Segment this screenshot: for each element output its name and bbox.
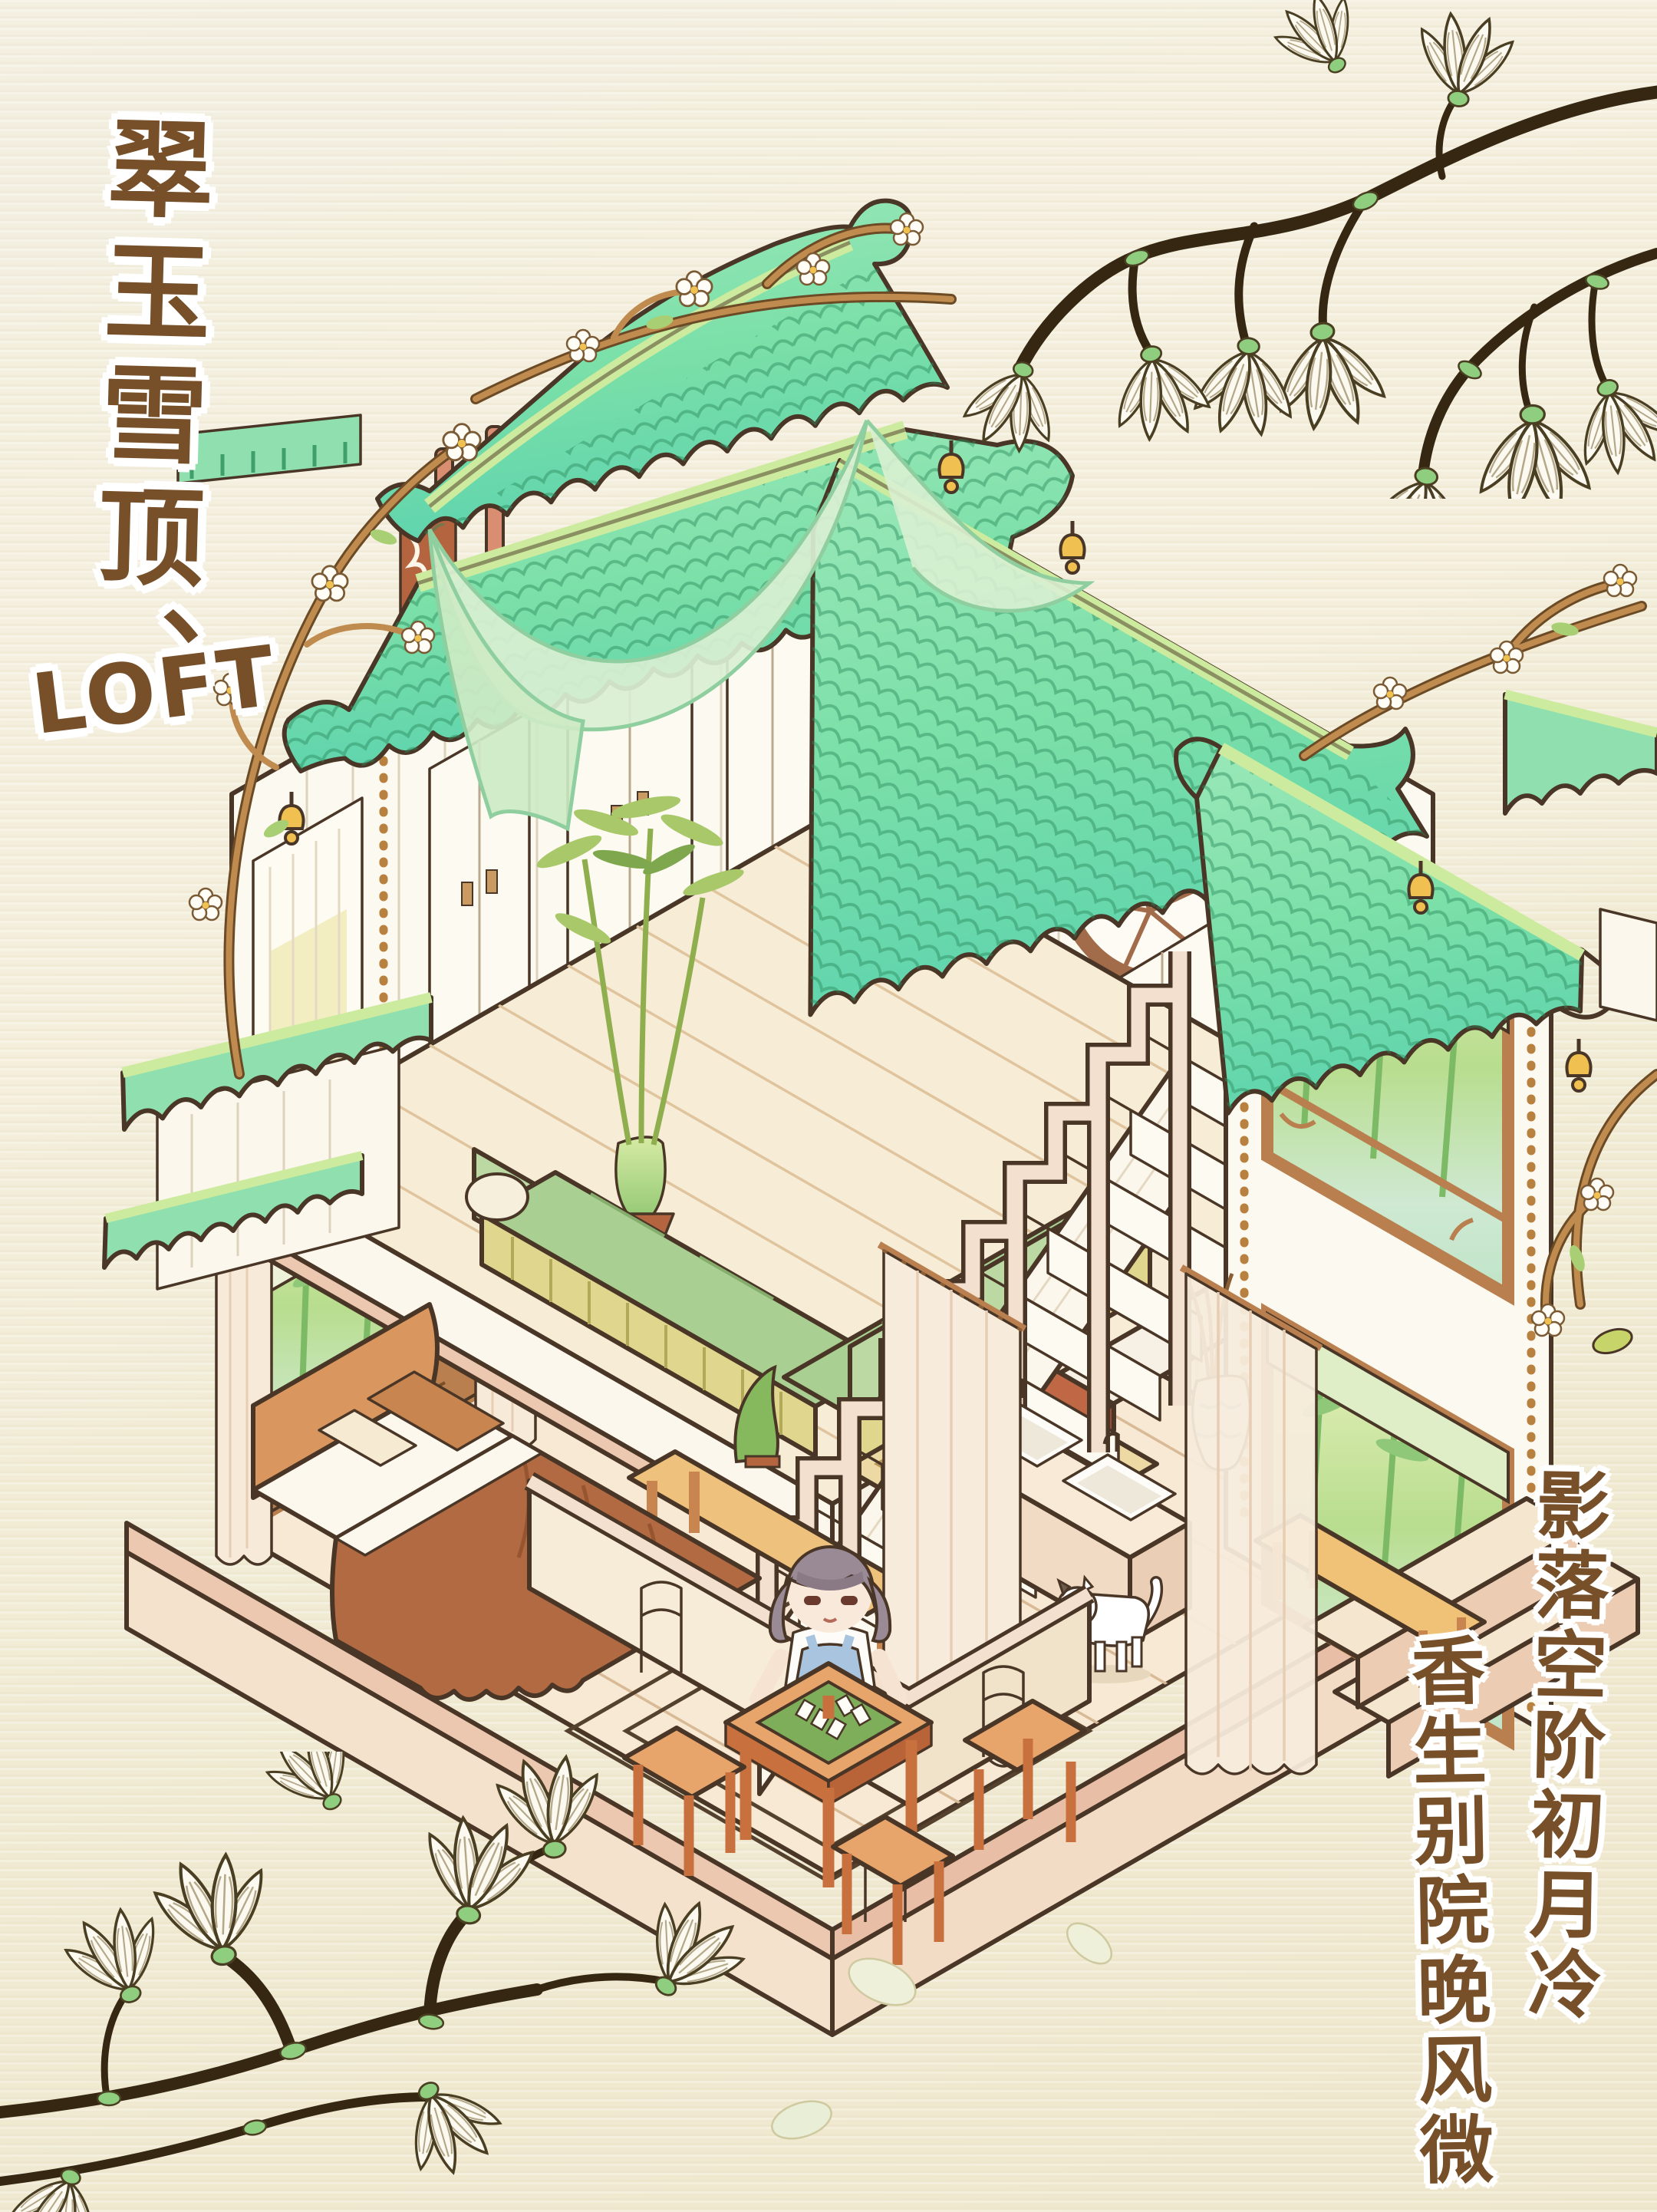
poster-background: 翠玉雪顶、 LOFT 影落空阶初月冷 香生别院晚风微 <box>0 0 1657 2212</box>
poem-line-right: 影落空阶初月冷 <box>1505 1466 1622 2026</box>
shower-curtain-right <box>1181 1268 1321 1774</box>
magnolia-branch-top-right <box>905 0 1657 499</box>
poem-line-left: 香生别院晚风微 <box>1389 1632 1505 2192</box>
small-bird <box>1590 1325 1635 1358</box>
magnolia-branch-bottom-left <box>0 1752 1151 2212</box>
falling-petals <box>767 1916 1118 2146</box>
